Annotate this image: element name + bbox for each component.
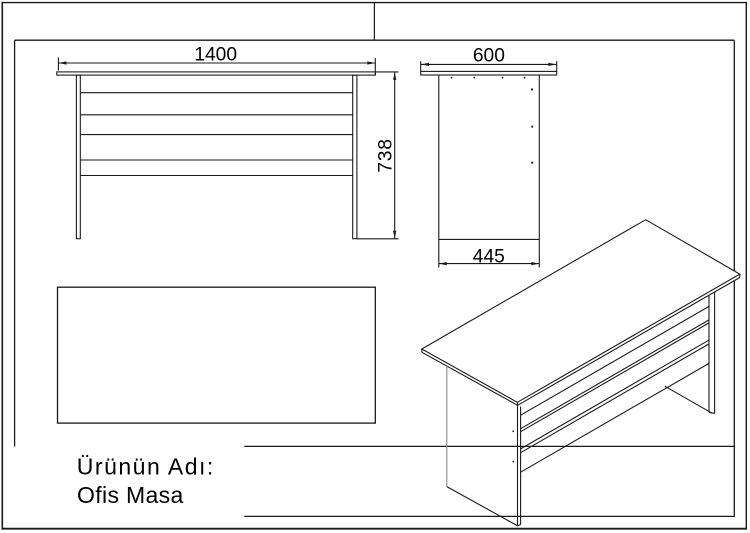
- svg-text:Ofis Masa: Ofis Masa: [77, 482, 184, 508]
- svg-text:600: 600: [473, 46, 505, 67]
- svg-text:Ürünün Adı:: Ürünün Adı:: [77, 454, 215, 480]
- svg-text:445: 445: [473, 247, 505, 268]
- svg-text:1400: 1400: [194, 45, 237, 66]
- svg-text:738: 738: [375, 138, 396, 172]
